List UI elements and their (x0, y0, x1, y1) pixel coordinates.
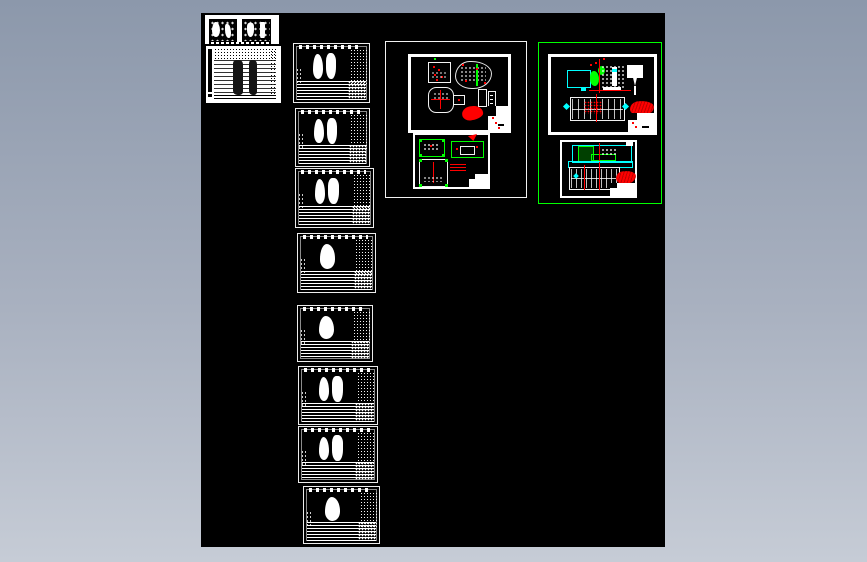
sheet-figure (327, 118, 337, 144)
table-figure-column (233, 60, 243, 95)
title-block-cut (469, 174, 475, 179)
drawing-1-frame[interactable] (408, 54, 511, 133)
title-block-corner (488, 106, 508, 130)
drawing-sheet-thumbnail[interactable] (293, 43, 370, 103)
grip-dot (419, 184, 422, 187)
sheet-parts-table (297, 81, 366, 100)
table-left-band (208, 49, 212, 92)
red-annotation-dots (456, 148, 458, 150)
signature-dash (498, 124, 504, 126)
grip-dot (442, 139, 445, 142)
glyph-blob (260, 22, 265, 38)
title-block-cut (610, 183, 617, 188)
stud-part-outline (478, 89, 487, 107)
red-stamp-dots (632, 122, 634, 124)
table-left-band (208, 94, 212, 97)
parts-table-thumbnail[interactable] (206, 46, 281, 103)
table-footer-rows (214, 95, 276, 101)
title-block-corner (469, 174, 488, 187)
drawing-3-frame[interactable] (548, 54, 657, 135)
table-figure-column (249, 60, 257, 95)
drawing-sheet-thumbnail[interactable] (295, 108, 370, 167)
sheet-table-text (351, 341, 369, 359)
figure-cell-right (242, 19, 271, 42)
mid-line (571, 178, 618, 179)
grip-dot (442, 154, 445, 157)
white-tick (626, 142, 633, 146)
red-annotation-dot (430, 145, 432, 147)
sheet-figure (325, 497, 340, 521)
sheet-parts-table (302, 403, 374, 422)
red-centerline-h (589, 90, 631, 91)
sheet-table-text (349, 145, 366, 164)
sheet-table-text (358, 522, 376, 540)
green-centerline (476, 64, 478, 86)
sheet-figure (320, 244, 335, 268)
title-block-cut (488, 106, 496, 116)
sheet-figure (314, 119, 323, 143)
table-rows (214, 60, 276, 94)
table-header-text (214, 48, 276, 59)
part-blob-outline (455, 61, 492, 89)
cyan-diamond (563, 103, 570, 110)
sheet-figure (332, 376, 343, 402)
drawing-sheet-thumbnail[interactable] (298, 426, 378, 483)
title-figures-thumbnail[interactable] (205, 15, 279, 44)
sheet-table-text (355, 462, 374, 480)
sheet-table-text (348, 81, 366, 100)
glyph-blob (225, 24, 231, 38)
cyan-fitting (612, 69, 617, 72)
red-annotation-dot (458, 99, 460, 101)
detail-noise (423, 176, 443, 182)
part-outline (428, 62, 451, 83)
white-flag-symbol (627, 65, 643, 86)
drawing-4-frame[interactable] (560, 140, 637, 198)
red-stamp-dots (492, 117, 494, 119)
red-centerline-v (584, 165, 585, 190)
table-right-text (270, 50, 276, 96)
red-annotation-dots (462, 64, 464, 66)
signature-dash (642, 126, 649, 128)
grip-dot (419, 159, 422, 162)
red-note-text (450, 164, 466, 173)
drawing-sheet-thumbnail[interactable] (295, 168, 374, 228)
glyph-blob (247, 23, 254, 37)
caption-dashes (209, 42, 272, 44)
sheet-figure (313, 54, 323, 78)
sheet-parts-table (299, 145, 366, 164)
cyan-fitting (581, 87, 586, 91)
thread-lines (490, 95, 493, 96)
flag-stem (634, 86, 636, 95)
sheet-parts-table (299, 206, 370, 225)
red-center-marks (584, 101, 602, 114)
green-rect-part (451, 141, 484, 158)
sheet-figure (332, 435, 343, 460)
grip-dot (445, 184, 448, 187)
sheet-figure (319, 316, 334, 339)
red-leader-arrow (468, 134, 477, 141)
detail-noise (601, 148, 617, 157)
drawing-sheet-thumbnail[interactable] (303, 486, 380, 544)
cyan-rect-part (567, 70, 591, 88)
sheet-table-text (352, 206, 370, 225)
desktop (0, 0, 867, 562)
drawing-sheet-thumbnail[interactable] (297, 233, 376, 293)
drawing-sheet-thumbnail[interactable] (297, 305, 373, 362)
grip-dot (445, 159, 448, 162)
sheet-table-text (354, 271, 372, 290)
sheet-table-text (355, 403, 374, 422)
detail-noise (460, 66, 486, 83)
drawing-sheet-thumbnail[interactable] (298, 366, 378, 425)
title-block-cut (628, 113, 637, 120)
inner-part (460, 146, 475, 155)
round-part-outline (428, 87, 454, 113)
green-rect-part (419, 139, 445, 157)
white-part-outline (419, 159, 448, 187)
glyph-blob (212, 22, 220, 37)
model-space-canvas[interactable] (201, 13, 665, 547)
grip-dot (419, 154, 422, 157)
sheet-parts-table (307, 522, 376, 540)
sheet-figure (319, 377, 329, 401)
green-fixture-blob (590, 71, 599, 86)
sheet-parts-table (302, 462, 374, 480)
title-block-corner (628, 113, 654, 132)
figure-cell-left (209, 19, 237, 42)
red-centerline-v (599, 165, 600, 190)
grip-dot (419, 139, 422, 142)
detail-noise (433, 92, 448, 99)
red-centerline-v (596, 94, 597, 122)
green-marker-dot (434, 58, 436, 60)
sheet-figure (328, 178, 339, 205)
red-annotation-dots (433, 66, 435, 68)
sheet-figure (326, 53, 337, 80)
red-annotation-dots (595, 62, 597, 64)
drawing-2-frame[interactable] (413, 133, 490, 189)
small-part-outline (453, 95, 465, 105)
title-block-corner (610, 183, 635, 196)
stud-part-outline (488, 91, 496, 107)
sheet-parts-table (301, 271, 372, 290)
red-centerline-v (599, 59, 600, 93)
detail-noise (431, 71, 447, 79)
sheet-figure (319, 437, 329, 460)
sheet-parts-table (301, 341, 369, 359)
